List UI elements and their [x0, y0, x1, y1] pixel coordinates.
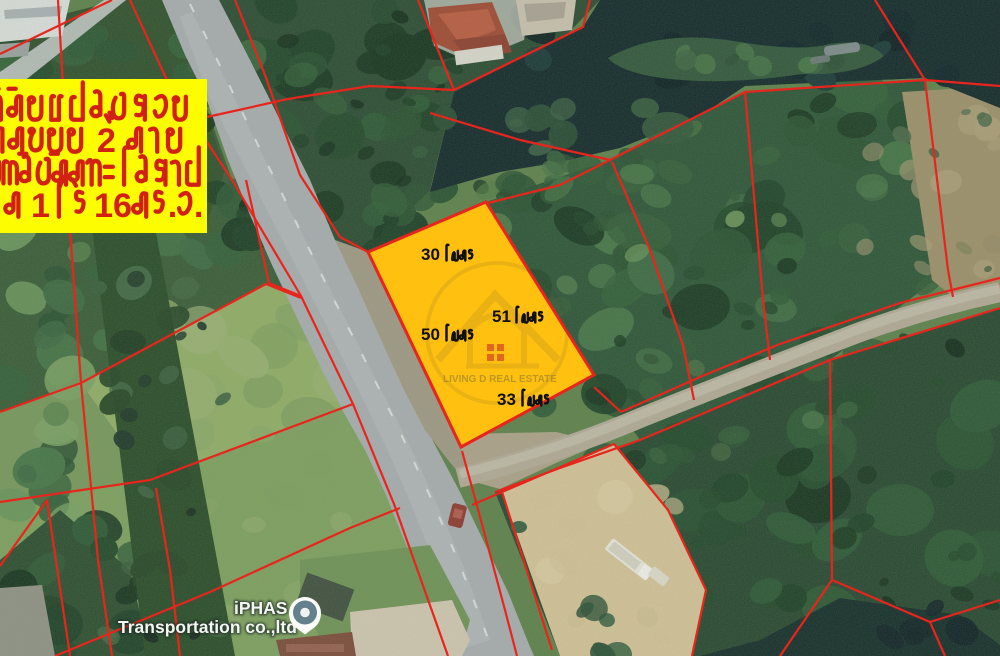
- svg-text:2: 2: [97, 122, 116, 160]
- svg-text:1: 1: [31, 187, 50, 225]
- svg-text:33: 33: [497, 390, 516, 409]
- svg-text:16: 16: [94, 187, 132, 225]
- svg-text:50: 50: [421, 325, 440, 344]
- svg-text:51: 51: [492, 307, 511, 326]
- svg-text:Transportation co.,ltd: Transportation co.,ltd: [118, 617, 297, 637]
- svg-text:30: 30: [421, 245, 440, 264]
- svg-text:iPHAS: iPHAS: [234, 598, 287, 618]
- svg-text:.: .: [194, 187, 204, 225]
- svg-text:LIVING D REAL ESTATE: LIVING D REAL ESTATE: [443, 374, 557, 385]
- svg-text:.: .: [168, 187, 178, 225]
